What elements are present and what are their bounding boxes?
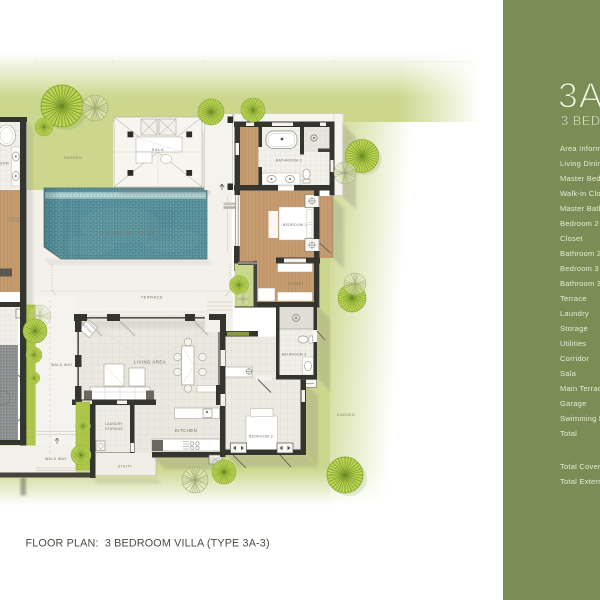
svg-text:Total Covered Area: Total Covered Area [560,462,600,471]
svg-text:FLOOR PLAN: 3 BEDROOM VILLA (: FLOOR PLAN: 3 BEDROOM VILLA (TYPE 3A-3) [26,538,270,550]
svg-text:GARDEN: GARDEN [337,413,355,417]
svg-text:Sala: Sala [560,369,577,378]
svg-text:Bathroom 2: Bathroom 2 [560,249,600,258]
svg-text:GARDEN: GARDEN [64,156,82,160]
svg-text:LIVING AREA: LIVING AREA [134,360,166,365]
svg-text:SALA: SALA [152,147,165,152]
svg-text:WALK WAY: WALK WAY [45,457,67,461]
svg-text:Area Information: Area Information [560,144,600,153]
svg-text:Laundry: Laundry [560,309,589,318]
svg-text:WALK WAY: WALK WAY [51,363,73,367]
svg-text:3A-3: 3A-3 [558,75,600,115]
svg-text:Closet: Closet [560,234,583,243]
svg-text:Corridor: Corridor [560,354,589,363]
svg-text:Master Bedroom: Master Bedroom [560,174,600,183]
svg-text:BEDROOM 2: BEDROOM 2 [283,223,307,227]
svg-text:TERRACE: TERRACE [141,296,163,300]
svg-text:Utilities: Utilities [560,339,586,348]
svg-text:Bathroom 3: Bathroom 3 [560,279,600,288]
svg-text:Bedroom 3: Bedroom 3 [560,264,599,273]
svg-text:Living Dining: Living Dining [560,159,600,168]
svg-text:Storage: Storage [560,324,588,333]
svg-text:BATHROOM 3: BATHROOM 3 [282,353,307,357]
svg-text:Walk-in Closet: Walk-in Closet [560,189,600,198]
svg-text:BEDROOM 3: BEDROOM 3 [249,435,273,439]
svg-text:MASTER BATHROOM: MASTER BATHROOM [0,162,9,166]
svg-text:Master Bathroom: Master Bathroom [560,204,600,213]
svg-text:Swimming Pool: Swimming Pool [560,414,600,423]
svg-text:STORAGE: STORAGE [105,427,124,431]
svg-text:Total: Total [560,429,577,438]
svg-text:LAUNDRY: LAUNDRY [105,422,123,426]
svg-text:Terrace: Terrace [560,294,587,303]
svg-text:KITCHEN: KITCHEN [175,428,197,433]
svg-text:Main Terrace: Main Terrace [560,384,600,393]
svg-text:3 BEDROOM VILLA: 3 BEDROOM VILLA [561,113,600,128]
svg-text:Bedroom 2: Bedroom 2 [560,219,599,228]
svg-text:UTILITY: UTILITY [118,465,133,469]
svg-text:CLOSET: CLOSET [288,282,303,286]
svg-text:Total External Area: Total External Area [560,477,600,486]
svg-text:BATHROOM 2: BATHROOM 2 [276,159,302,163]
svg-text:Garage: Garage [560,399,587,408]
svg-text:SWIMMING POOL: SWIMMING POOL [101,231,156,237]
